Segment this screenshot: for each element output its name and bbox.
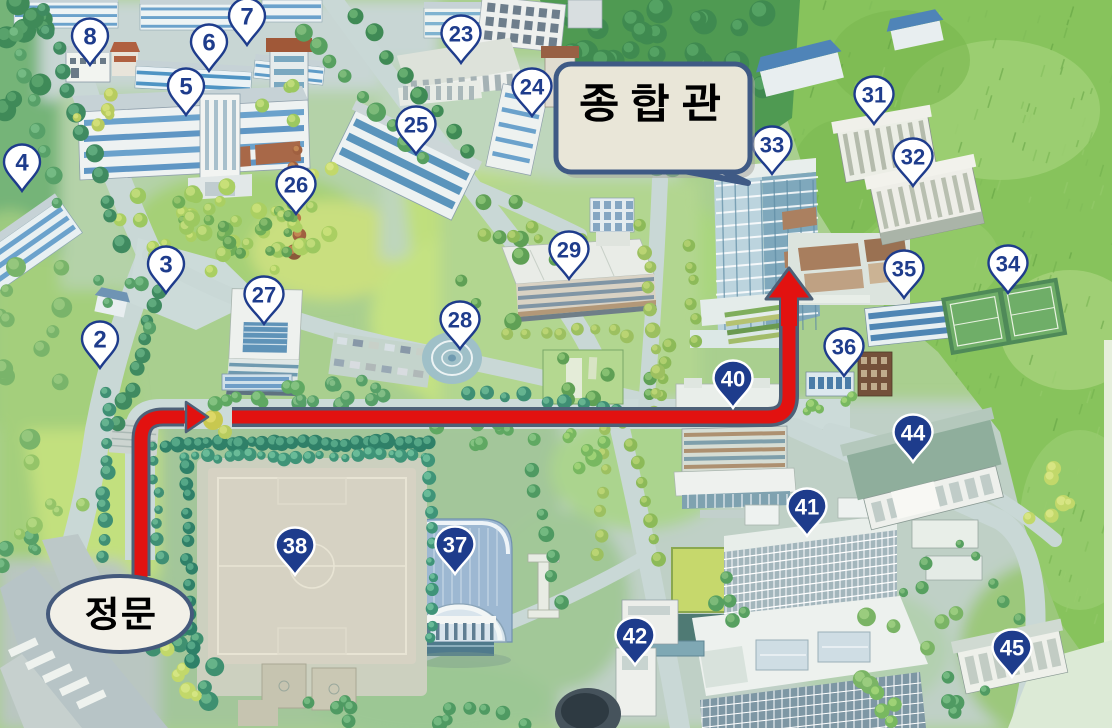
svg-text:7: 7: [240, 4, 253, 31]
svg-text:5: 5: [179, 74, 192, 101]
svg-text:37: 37: [443, 533, 467, 558]
svg-text:32: 32: [901, 145, 925, 170]
svg-text:27: 27: [252, 283, 276, 308]
svg-text:33: 33: [760, 133, 784, 158]
svg-text:4: 4: [15, 150, 29, 177]
svg-text:44: 44: [901, 421, 926, 446]
svg-text:42: 42: [623, 624, 647, 649]
svg-text:34: 34: [996, 252, 1021, 277]
svg-text:35: 35: [892, 257, 916, 282]
svg-text:2: 2: [93, 327, 106, 354]
svg-text:41: 41: [795, 495, 819, 520]
svg-text:23: 23: [449, 22, 473, 47]
svg-text:26: 26: [284, 173, 308, 198]
svg-text:3: 3: [159, 252, 172, 279]
svg-text:29: 29: [557, 238, 581, 263]
svg-text:6: 6: [202, 30, 215, 57]
svg-text:24: 24: [520, 75, 545, 100]
svg-text:28: 28: [448, 308, 472, 333]
svg-text:8: 8: [83, 24, 96, 51]
svg-text:40: 40: [721, 367, 745, 392]
svg-text:36: 36: [832, 335, 856, 360]
svg-text:31: 31: [862, 83, 886, 108]
svg-text:38: 38: [283, 534, 307, 559]
svg-text:25: 25: [404, 113, 428, 138]
svg-text:45: 45: [1000, 636, 1024, 661]
